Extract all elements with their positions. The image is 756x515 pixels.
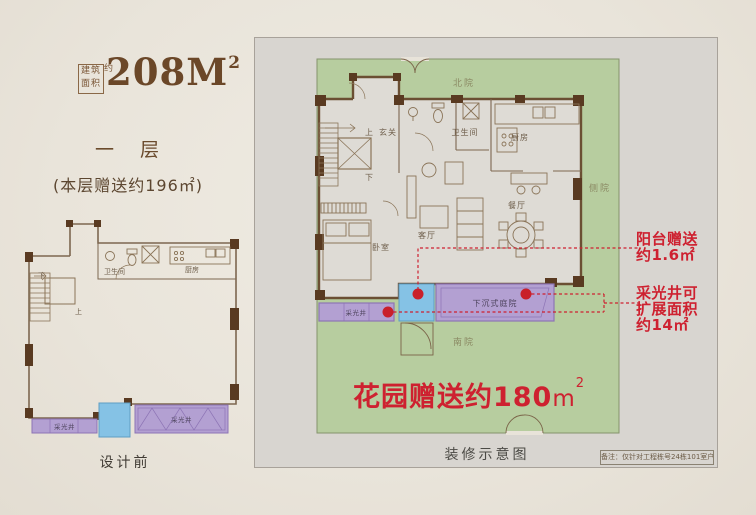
lightwell-annotation: 采光井可 扩展面积 约14㎡ [636,285,698,333]
north-yard-label: 北院 [453,77,475,89]
bedroom-label: 卧室 [372,242,390,252]
floor-gift-label: (本层赠送约196㎡) [12,172,244,196]
area-sup: 2 [228,53,241,73]
mini-label-down: 下 [38,272,45,280]
bathroom-label: 卫生间 [452,127,479,137]
mini-plan-piers [25,220,239,420]
dining-label: 餐厅 [508,201,526,210]
mini-plan-stairs [30,272,75,321]
balcony-annotation-line2: 约1.6㎡ [636,247,698,263]
side-yard-label: 侧院 [589,182,611,194]
balcony-annotation: 阳台赠送 约1.6㎡ [636,231,698,263]
floorplan-page: { "header": { "seal_row1": "建筑", "seal_r… [0,0,756,515]
kitchen-label: 厨房 [511,132,529,142]
mini-label-lightwell-left: 采光井 [54,422,75,431]
floor-label: 一 层 [47,135,207,162]
up-label: 上 [365,128,374,137]
garden-gift-unit: m [552,386,575,412]
area-seal-row1: 建筑 [79,65,103,78]
mini-plan-walls [29,224,236,418]
lightwell-annotation-line3: 约14㎡ [636,317,698,333]
entry-label: 玄关 [379,127,397,137]
lightwell-label: 采光井 [346,308,367,317]
area-value: 208M [106,50,228,94]
plan-note: 备注：仅针对工程栋号24栋101室户型 [600,450,714,465]
mini-blue-area [99,403,130,437]
garden-gift-sup: 2 [576,376,585,391]
living-label: 客厅 [418,230,436,240]
mini-label-kitchen: 厨房 [185,265,199,274]
down-label: 下 [365,173,374,182]
south-yard-label: 南院 [453,336,475,348]
balcony-annotation-line1: 阳台赠送 [636,231,698,247]
mini-label-lightwell-right: 采光井 [171,415,192,424]
before-design-caption: 设计前 [55,452,195,472]
mini-label-bathroom: 卫生间 [104,267,125,276]
lightwell-annotation-line1: 采光井可 [636,285,698,301]
page-title: 208M2 [106,50,241,94]
sunken-courtyard-label: 下沉式庭院 [473,298,518,308]
garden-gift-label: 花园赠送约180m2 [345,375,593,414]
lightwell-annotation-line2: 扩展面积 [636,301,698,317]
mini-label-up: 上 [75,307,82,316]
garden-gift-text: 花园赠送约180 [353,382,552,413]
area-seal-row2: 面积 [79,78,103,91]
house-footprint [319,77,581,298]
before-design-plan: 下 上 卫生间 厨房 采光井 采光井 [20,216,240,440]
decorated-plan-panel: 北院 侧院 南院 上 玄关 下 卫生间 厨房 卧室 客厅 餐厅 采光井 下沉式庭… [254,37,718,468]
area-seal: 建筑 面积 [78,64,104,94]
